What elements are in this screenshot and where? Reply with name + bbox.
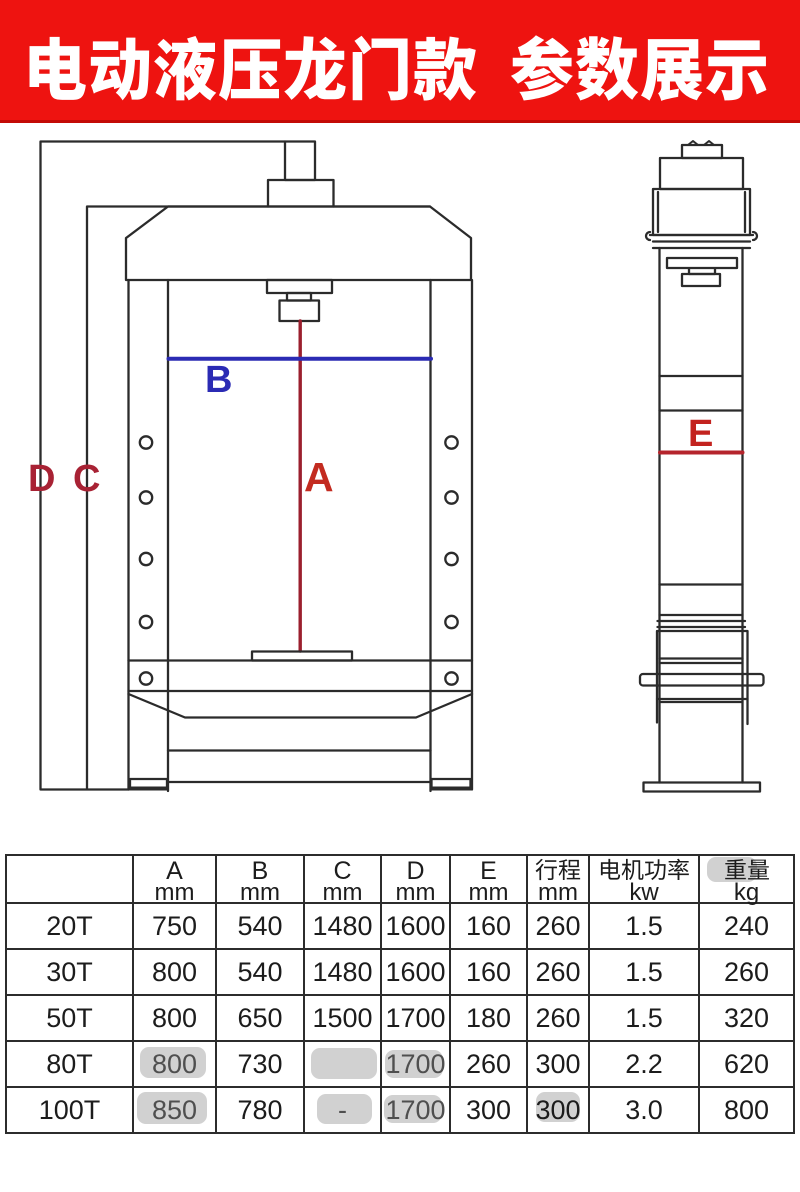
svg-text:E: E: [688, 413, 713, 455]
svg-text:B: B: [205, 359, 232, 401]
svg-text:A: A: [304, 454, 334, 500]
svg-text:D: D: [28, 458, 55, 500]
svg-text:C: C: [73, 458, 100, 500]
